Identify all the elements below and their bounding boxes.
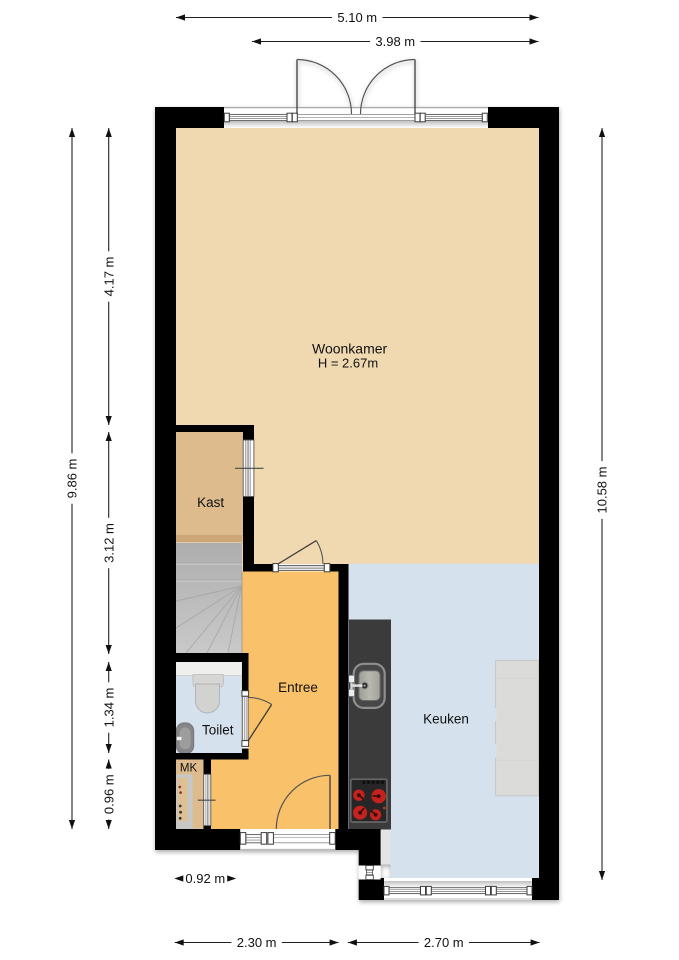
svg-text:4.17 m: 4.17 m <box>101 257 116 297</box>
svg-text:2.30 m: 2.30 m <box>237 935 277 950</box>
svg-text:Keuken: Keuken <box>423 711 469 726</box>
svg-text:1.34 m: 1.34 m <box>101 688 116 728</box>
svg-text:3.12 m: 3.12 m <box>101 523 116 563</box>
svg-text:5.10 m: 5.10 m <box>337 10 377 25</box>
svg-text:Woonkamer: Woonkamer <box>312 341 388 357</box>
svg-text:Entree: Entree <box>278 680 318 695</box>
svg-text:MK: MK <box>180 763 198 775</box>
svg-text:10.58 m: 10.58 m <box>595 467 610 514</box>
svg-text:3.98 m: 3.98 m <box>375 34 415 49</box>
svg-text:Kast: Kast <box>197 495 224 510</box>
svg-text:H = 2.67m: H = 2.67m <box>318 355 378 370</box>
svg-text:2.70 m: 2.70 m <box>424 935 464 950</box>
svg-text:9.86 m: 9.86 m <box>65 459 80 499</box>
svg-text:Toilet: Toilet <box>202 723 234 738</box>
svg-text:0.96 m: 0.96 m <box>101 774 116 814</box>
svg-text:0.92 m: 0.92 m <box>185 871 225 886</box>
